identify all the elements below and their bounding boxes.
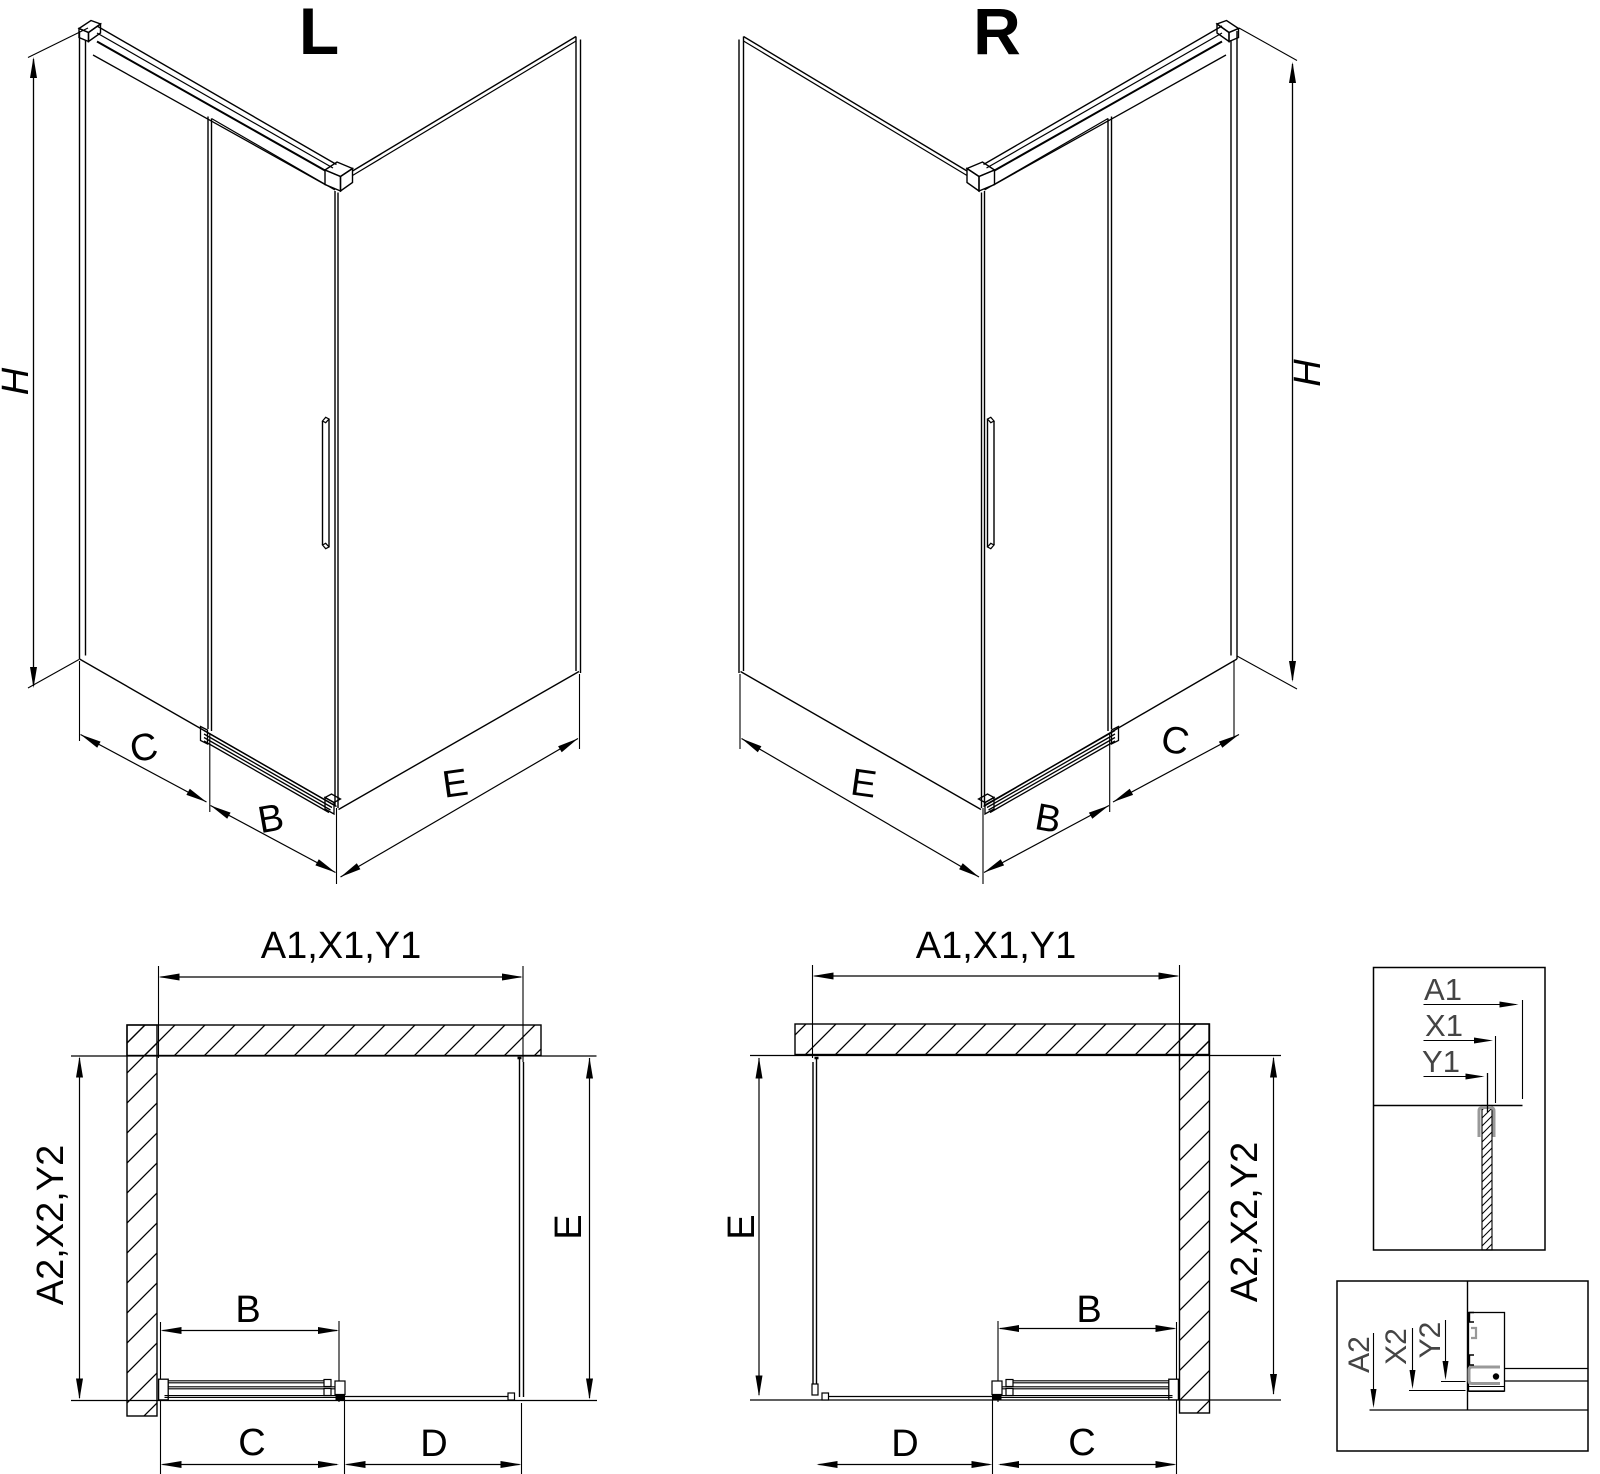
svg-text:A1,X1,Y1: A1,X1,Y1 (261, 925, 422, 967)
svg-text:A2,X2,Y2: A2,X2,Y2 (30, 1145, 72, 1306)
svg-text:C: C (1068, 1422, 1095, 1464)
svg-text:A2,X2,Y2: A2,X2,Y2 (1224, 1142, 1266, 1303)
svg-text:E: E (548, 1214, 590, 1239)
svg-text:Y1: Y1 (1422, 1044, 1460, 1079)
svg-text:X1: X1 (1425, 1008, 1463, 1043)
svg-text:Y2: Y2 (1414, 1322, 1447, 1359)
svg-text:E: E (721, 1214, 763, 1239)
svg-text:H: H (1287, 359, 1329, 387)
svg-text:L: L (299, 0, 339, 68)
svg-text:C: C (238, 1422, 265, 1464)
svg-text:A1: A1 (1424, 972, 1462, 1007)
svg-text:A2: A2 (1343, 1336, 1376, 1373)
svg-text:H: H (0, 367, 37, 395)
svg-text:R: R (973, 0, 1021, 68)
svg-text:D: D (891, 1423, 918, 1465)
svg-text:D: D (420, 1423, 447, 1465)
svg-text:X2: X2 (1380, 1328, 1413, 1365)
svg-text:B: B (1076, 1289, 1101, 1331)
svg-text:B: B (235, 1289, 260, 1331)
svg-text:A1,X1,Y1: A1,X1,Y1 (916, 925, 1077, 967)
